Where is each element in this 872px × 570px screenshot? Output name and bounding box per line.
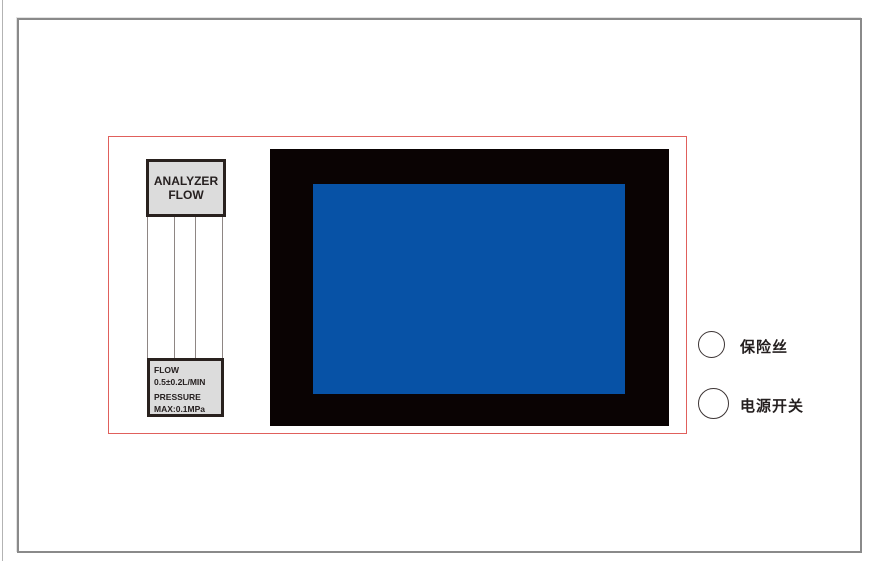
flowmeter-tube-inner-line	[174, 217, 175, 358]
display-bezel	[270, 149, 669, 426]
power-switch-button[interactable]	[698, 388, 729, 419]
display-screen	[313, 184, 625, 394]
flow-spec-line2: 0.5±0.2L/MIN	[154, 377, 221, 389]
canvas-edge-line	[2, 0, 3, 561]
flow-spec-line1: FLOW	[154, 365, 221, 377]
power-switch-label: 电源开关	[740, 395, 804, 416]
flowmeter-tube	[147, 217, 223, 358]
analyzer-flow-label-line2: FLOW	[168, 188, 203, 202]
fuse-label: 保险丝	[740, 336, 788, 357]
flow-spec-line3: PRESSURE	[154, 392, 221, 404]
flow-spec-label: FLOW 0.5±0.2L/MIN PRESSURE MAX:0.1MPa	[147, 358, 224, 417]
analyzer-front-panel: ANALYZER FLOW FLOW 0.5±0.2L/MIN PRESSURE…	[17, 18, 862, 553]
flowmeter-tube-inner-line	[195, 217, 196, 358]
analyzer-flow-label: ANALYZER FLOW	[146, 159, 226, 217]
flow-spec-line4: MAX:0.1MPa	[154, 404, 221, 416]
fuse-holder[interactable]	[698, 331, 725, 358]
analyzer-flow-label-line1: ANALYZER	[154, 174, 218, 188]
